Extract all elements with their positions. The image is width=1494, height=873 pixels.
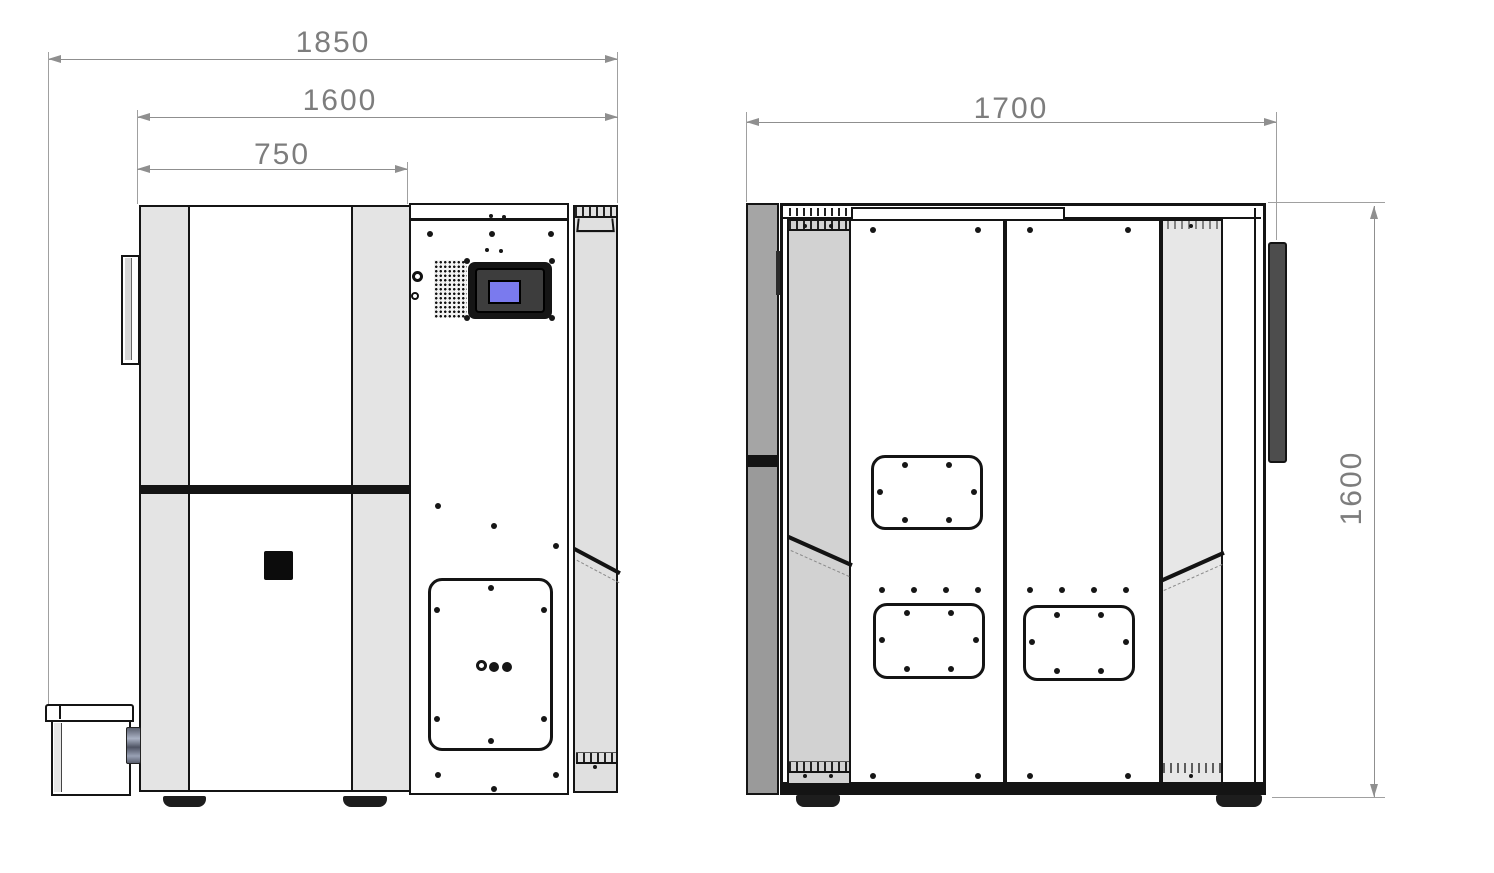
- screw-icon: [491, 523, 497, 529]
- dimension-overall-width-label: 1850: [233, 26, 433, 60]
- screw-icon: [870, 227, 876, 233]
- screw-icon: [904, 666, 910, 672]
- arrow-left-icon: [137, 165, 150, 173]
- screw-icon: [975, 773, 981, 779]
- screw-icon: [435, 772, 441, 778]
- column-bottom-band: [1163, 763, 1221, 773]
- dimension-door-width-label: 750: [172, 138, 392, 172]
- top-hatch-band: [789, 208, 847, 216]
- edge-bottom-band: [576, 752, 616, 764]
- screw-icon: [1029, 639, 1035, 645]
- extension-line: [1268, 202, 1385, 203]
- side-rear-strip-lower: [746, 465, 779, 795]
- controller-bezel: [475, 268, 545, 313]
- screw-icon: [870, 773, 876, 779]
- front-upper-door: [188, 205, 353, 489]
- dimension-height-label: 1600: [1335, 428, 1369, 548]
- screw-icon: [829, 224, 833, 228]
- screw-icon: [1027, 773, 1033, 779]
- screw-icon: [541, 607, 547, 613]
- screw-icon: [971, 489, 977, 495]
- external-box-body: [51, 720, 131, 796]
- indicator-ring-icon: [476, 660, 487, 671]
- screw-icon: [1123, 639, 1129, 645]
- front-right-edge-column: [573, 205, 618, 793]
- screw-icon: [948, 666, 954, 672]
- front-hopper-panel: [409, 203, 569, 795]
- controller-unit: [468, 262, 552, 319]
- door-latch-plate: [264, 551, 293, 580]
- side-column-right: [1161, 219, 1223, 785]
- screw-icon: [803, 774, 807, 778]
- screw-icon: [553, 543, 559, 549]
- screw-icon: [1059, 587, 1065, 593]
- screw-icon: [829, 774, 833, 778]
- screw-icon: [435, 503, 441, 509]
- side-top-inset-rail: [851, 207, 1065, 221]
- arrow-left-icon: [746, 118, 759, 126]
- screw-icon: [488, 738, 494, 744]
- foot: [343, 796, 387, 807]
- screw-icon: [803, 224, 807, 228]
- arrow-left-icon: [137, 113, 150, 121]
- screw-icon: [1098, 668, 1104, 674]
- front-top-left-side-strip: [139, 205, 190, 489]
- screw-icon: [902, 517, 908, 523]
- column-top-bracket: [789, 221, 849, 231]
- arrow-up-icon: [1370, 206, 1378, 219]
- screw-icon: [943, 587, 949, 593]
- lcd-screen: [488, 280, 521, 304]
- indicator-dot-icon: [502, 662, 512, 672]
- screw-icon: [1189, 224, 1193, 228]
- dimension-line: [48, 59, 618, 60]
- dimension-line: [1374, 206, 1375, 797]
- front-lower-door: [188, 492, 353, 792]
- screw-icon: [489, 231, 495, 237]
- front-top-right-side-strip: [351, 205, 411, 489]
- hinge-bar-inner: [125, 258, 132, 360]
- screw-icon: [1098, 612, 1104, 618]
- column-mid-bracket-shadow: [791, 550, 850, 577]
- hopper-top-rail: [411, 218, 567, 221]
- screw-icon: [485, 248, 489, 252]
- extension-line: [407, 162, 408, 204]
- side-access-port-upper: [871, 455, 983, 530]
- knob-icon: [412, 271, 423, 282]
- side-access-port-lower-left: [873, 603, 985, 679]
- screw-icon: [1189, 774, 1193, 778]
- dimension-line: [137, 117, 618, 118]
- knob-icon: [411, 292, 419, 300]
- screw-icon: [553, 772, 559, 778]
- arrow-left-icon: [48, 55, 61, 63]
- side-bottom-rail: [783, 782, 1263, 792]
- extension-line: [746, 112, 747, 202]
- screw-icon: [879, 637, 885, 643]
- screw-icon: [593, 765, 597, 769]
- foot: [1216, 795, 1262, 807]
- extension-line: [617, 52, 618, 203]
- screw-icon: [902, 462, 908, 468]
- box-connector-coupling: [126, 727, 141, 764]
- side-access-port-lower-right: [1023, 605, 1135, 681]
- extension-line: [48, 52, 49, 705]
- screw-icon: [427, 231, 433, 237]
- screw-icon: [434, 607, 440, 613]
- arrow-right-icon: [605, 113, 618, 121]
- screw-icon: [489, 214, 493, 218]
- screw-icon: [1054, 612, 1060, 618]
- side-view: [746, 203, 1266, 795]
- screw-icon: [491, 786, 497, 792]
- screw-icon: [973, 637, 979, 643]
- foot: [163, 796, 206, 807]
- indicator-dot-icon: [489, 662, 499, 672]
- edge-top-bracket: [576, 218, 615, 232]
- external-box-inner-edge: [54, 723, 62, 792]
- dimension-line: [137, 169, 408, 170]
- screw-icon: [499, 249, 503, 253]
- screw-icon: [877, 489, 883, 495]
- screw-icon: [948, 610, 954, 616]
- front-view: [139, 203, 620, 795]
- screw-icon: [1027, 227, 1033, 233]
- screw-icon: [1054, 668, 1060, 674]
- screw-icon: [434, 716, 440, 722]
- screw-icon: [1125, 227, 1131, 233]
- dimension-depth-label: 1700: [911, 92, 1111, 126]
- hopper-access-port: [428, 578, 553, 751]
- edge-hatch-band: [575, 207, 616, 218]
- side-right-edge-line: [1254, 208, 1256, 794]
- front-left-hinge-bar: [121, 255, 140, 365]
- screw-icon: [1091, 587, 1097, 593]
- screw-icon: [1125, 773, 1131, 779]
- side-panel-a: [849, 219, 1005, 785]
- screw-icon: [502, 215, 506, 219]
- side-main-panel: [780, 203, 1266, 795]
- screw-icon: [975, 227, 981, 233]
- screw-icon: [879, 587, 885, 593]
- screw-icon: [488, 585, 494, 591]
- dimension-body-width-label: 1600: [240, 84, 440, 118]
- column-bottom-band: [789, 761, 849, 773]
- front-bottom-right-side-strip: [351, 492, 411, 792]
- screw-icon: [1027, 587, 1033, 593]
- screw-icon: [946, 462, 952, 468]
- side-rear-strip-upper: [746, 203, 779, 457]
- extension-line: [1276, 112, 1277, 240]
- foot: [796, 795, 840, 807]
- screw-icon: [548, 231, 554, 237]
- side-panel-b: [1005, 219, 1161, 785]
- front-bottom-left-side-strip: [139, 492, 190, 792]
- screw-icon: [911, 587, 917, 593]
- screw-icon: [904, 610, 910, 616]
- column-top-ticks: [1167, 221, 1219, 229]
- extension-line: [137, 110, 138, 204]
- screw-icon: [1123, 587, 1129, 593]
- arrow-down-icon: [1370, 784, 1378, 797]
- side-column-left: [787, 219, 851, 785]
- drawing-sheet: 1850 1600 750: [0, 0, 1494, 873]
- screw-icon: [975, 587, 981, 593]
- lid-seam: [59, 706, 61, 719]
- vent-grille: [434, 260, 467, 318]
- screw-icon: [541, 716, 547, 722]
- screw-icon: [946, 517, 952, 523]
- dimension-line: [746, 122, 1277, 123]
- extension-line: [1272, 797, 1385, 798]
- door-handle: [1268, 242, 1287, 463]
